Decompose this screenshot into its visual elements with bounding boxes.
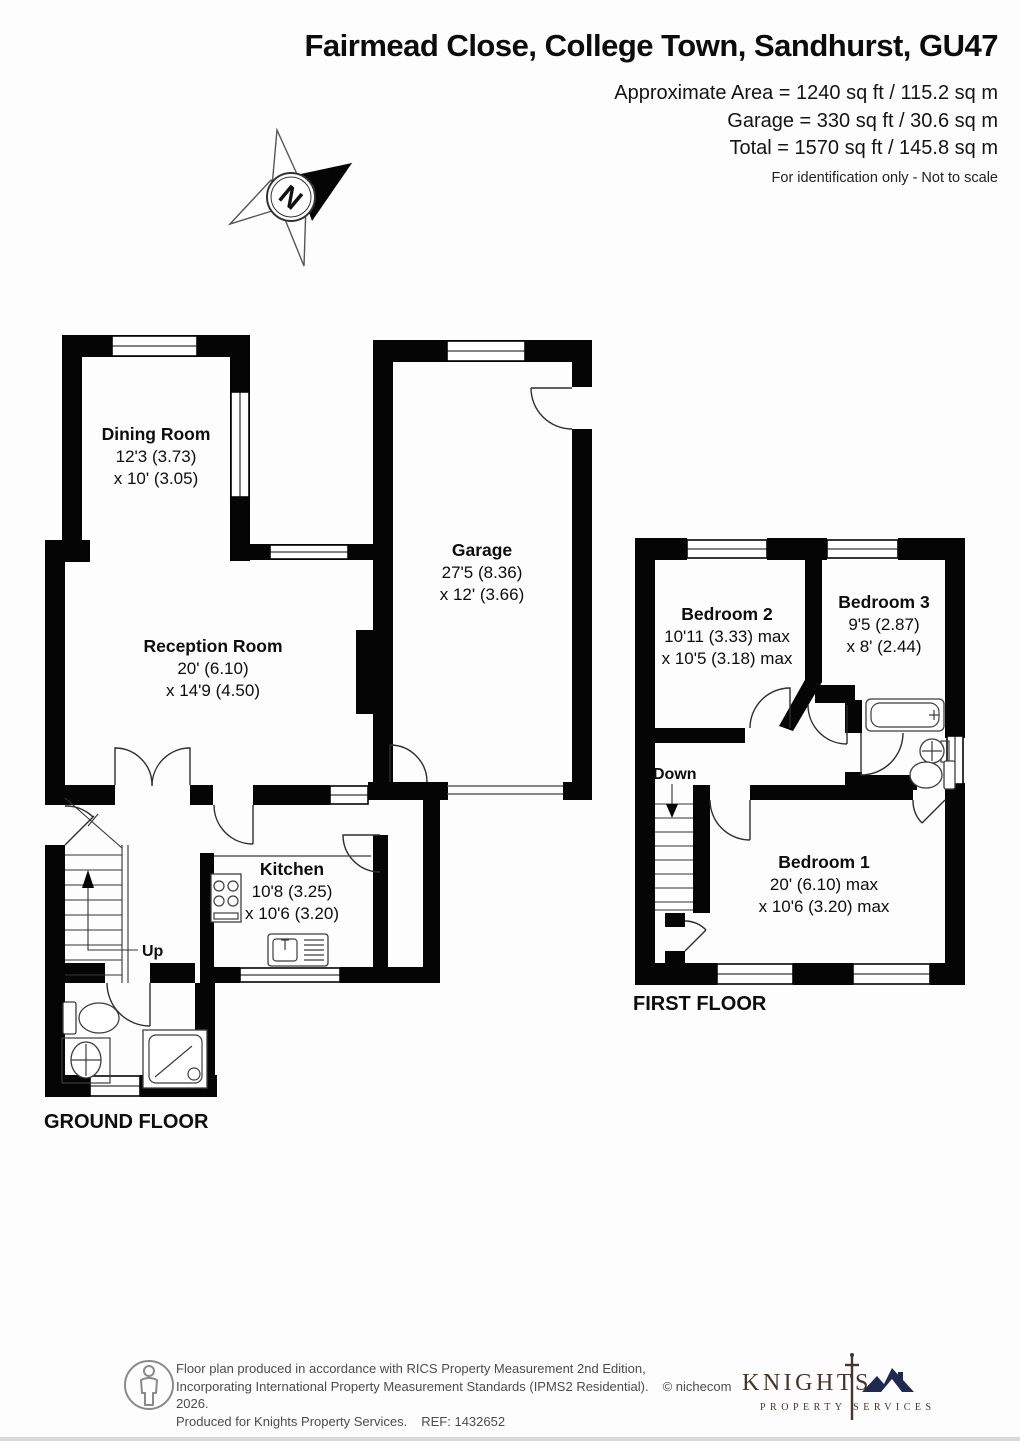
ground-floor-label: GROUND FLOOR [44, 1111, 209, 1133]
window [717, 964, 793, 984]
floorplan-page: Fairmead Close, College Town, Sandhurst,… [0, 0, 1020, 1441]
up-arrow-head [82, 870, 94, 888]
front-door-arc [65, 806, 94, 845]
garage-vehicle-door [447, 786, 563, 794]
footer-line-3: Produced for Knights Property Services.R… [176, 1413, 746, 1431]
bedroom1-dim1: 20' (6.10) max [770, 875, 879, 894]
bedroom2-dim1: 10'11 (3.33) max [664, 627, 790, 646]
reception-room-label: Reception Room [143, 636, 282, 656]
footer-disclaimer: Floor plan produced in accordance with R… [176, 1360, 746, 1430]
bedroom1-label: Bedroom 1 [778, 852, 870, 872]
up-label: Up [142, 943, 164, 960]
bathroom-basin-icon [920, 739, 949, 763]
first-floor-label: FIRST FLOOR [633, 993, 767, 1015]
shower-icon [143, 1030, 207, 1088]
floor-plan-drawing: N [0, 0, 1020, 1441]
kitchen-dim2: x 10'6 (3.20) [245, 904, 339, 923]
bedroom1-ne-door-arc [913, 800, 945, 823]
reception-french-door-arc [115, 748, 152, 785]
bedroom3-label: Bedroom 3 [838, 592, 930, 612]
bath-icon [866, 699, 944, 731]
window [270, 545, 348, 559]
garage-dim1: 27'5 (8.36) [442, 563, 523, 582]
bedroom3-door-arc [808, 705, 847, 744]
dining-room-dim1: 12'3 (3.73) [116, 447, 197, 466]
person-scale-icon [122, 1357, 176, 1413]
knights-logo-graphic: KNIGHTS PROPERTY SERVICES [742, 1348, 932, 1428]
window [90, 1076, 140, 1096]
window [112, 336, 197, 356]
window [330, 786, 368, 804]
up-arrow [88, 876, 138, 950]
window [687, 540, 767, 558]
bedroom1-dim2: x 10'6 (3.20) max [759, 897, 890, 916]
landing-door-arc [685, 921, 706, 951]
kitchen-door-arc [214, 805, 253, 844]
window [447, 341, 525, 361]
bedroom3-dim2: x 8' (2.44) [846, 637, 921, 656]
bathroom-toilet-icon [910, 761, 955, 789]
kitchen-sink-icon [268, 934, 328, 966]
first-floor-stairs [655, 784, 693, 910]
bedroom3-dim1: 9'5 (2.87) [848, 615, 919, 634]
reference-number: REF: 1432652 [421, 1414, 505, 1429]
garage-side-door-arc [531, 388, 572, 429]
kitchen-dim1: 10'8 (3.25) [252, 882, 333, 901]
logo-tagline: PROPERTY SERVICES [760, 1402, 932, 1413]
bathroom-door-arc [861, 733, 903, 775]
dining-room-label: Dining Room [102, 424, 211, 444]
toilet-icon [63, 1002, 119, 1034]
window [231, 392, 249, 497]
garage-label: Garage [452, 540, 513, 560]
garage-rear-door-arc [390, 745, 427, 782]
bedroom2-label: Bedroom 2 [681, 604, 773, 624]
bedroom2-dim2: x 10'5 (3.18) max [662, 649, 793, 668]
compass-north-icon: N [230, 130, 352, 266]
footer-line-1: Floor plan produced in accordance with R… [176, 1360, 746, 1378]
garage-dim2: x 12' (3.66) [440, 585, 525, 604]
window [240, 968, 340, 982]
bedroom1-door-arc [710, 800, 750, 840]
reception-french-door-arc [152, 748, 190, 786]
dining-room-dim2: x 10' (3.05) [114, 469, 199, 488]
window [827, 540, 898, 558]
window [853, 964, 930, 984]
down-label: Down [653, 766, 697, 783]
knights-logo: KNIGHTS PROPERTY SERVICES [742, 1348, 932, 1433]
footer-line-2: Incorporating International Property Mea… [176, 1378, 746, 1413]
down-arrow-head [666, 804, 678, 818]
reception-room-dim2: x 14'9 (4.50) [166, 681, 260, 700]
kitchen-label: Kitchen [260, 859, 324, 879]
ground-floor-stairs [65, 798, 138, 983]
reception-room-dim1: 20' (6.10) [177, 659, 248, 678]
